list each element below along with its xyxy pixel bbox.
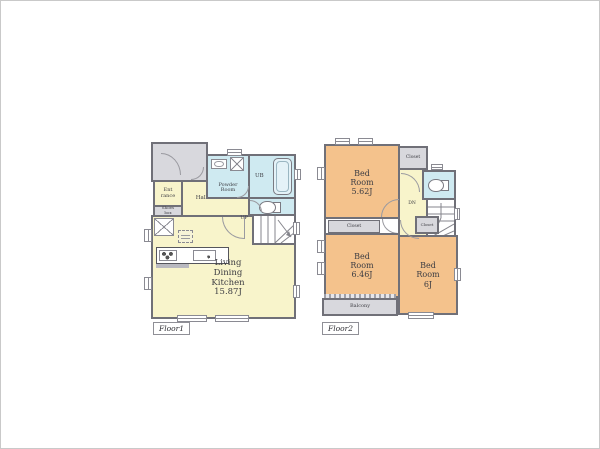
counter-edge [156,264,189,268]
toilet-icon [259,200,281,213]
balcony-label: Balcony [350,304,370,310]
shoes-box: Shoes box [153,205,183,217]
room-bedroom-right: Bed Room 6J [398,235,458,315]
window [144,277,152,290]
room-bedroom-left: Bed Room 6.46J [324,233,400,298]
floor1-label: Floor1 [153,322,190,335]
legend-icon [178,230,193,243]
bedroom-top-label: Bed Room 5.62J [345,169,379,197]
stairs-up [252,214,296,245]
bathtub-icon [273,158,292,195]
shoes-box-label: Shoes box [162,206,175,215]
window [227,149,242,156]
window [294,169,301,180]
balcony: Balcony [322,298,398,316]
toilet-bowl [428,179,444,193]
window [317,262,325,275]
ldk-label: Living Dining Kitchen 15.87J [202,259,254,298]
floor-plan-canvas: Ent rance Shoes box Hall Powder Room UB … [0,0,600,449]
toilet-icon [428,178,449,191]
window [431,164,443,170]
window [293,285,300,298]
closet-mid-label: Closet [421,223,434,228]
window [215,315,249,322]
bedroom-left-label: Bed Room 6.46J [345,252,379,280]
closet-inner: Closet [328,220,380,233]
washbasin-icon [211,159,227,169]
room-entrance: Ent rance [153,180,183,207]
window [358,138,373,145]
window [293,222,300,235]
window [317,167,325,180]
window [335,138,350,145]
refrigerator-space-icon [154,218,174,236]
floor2-label: Floor2 [322,322,359,335]
entrance-label: Ent rance [160,188,176,200]
stairs-down-label: DN [405,201,419,206]
washing-machine-icon [230,157,244,171]
closet-top: Closet [398,146,428,170]
window [144,229,152,242]
closet-inner-label: Closet [347,224,361,229]
stove-icon [159,250,177,261]
window [177,315,207,322]
door-leaf [244,217,245,239]
bedroom-right-label: Bed Room 6J [411,261,445,289]
window [454,268,461,281]
window [408,312,434,319]
closet-top-label: Closet [406,155,420,160]
bath-label: UB [255,173,264,179]
window [454,208,460,220]
stairs-up-icon [254,216,294,243]
window [317,240,325,253]
